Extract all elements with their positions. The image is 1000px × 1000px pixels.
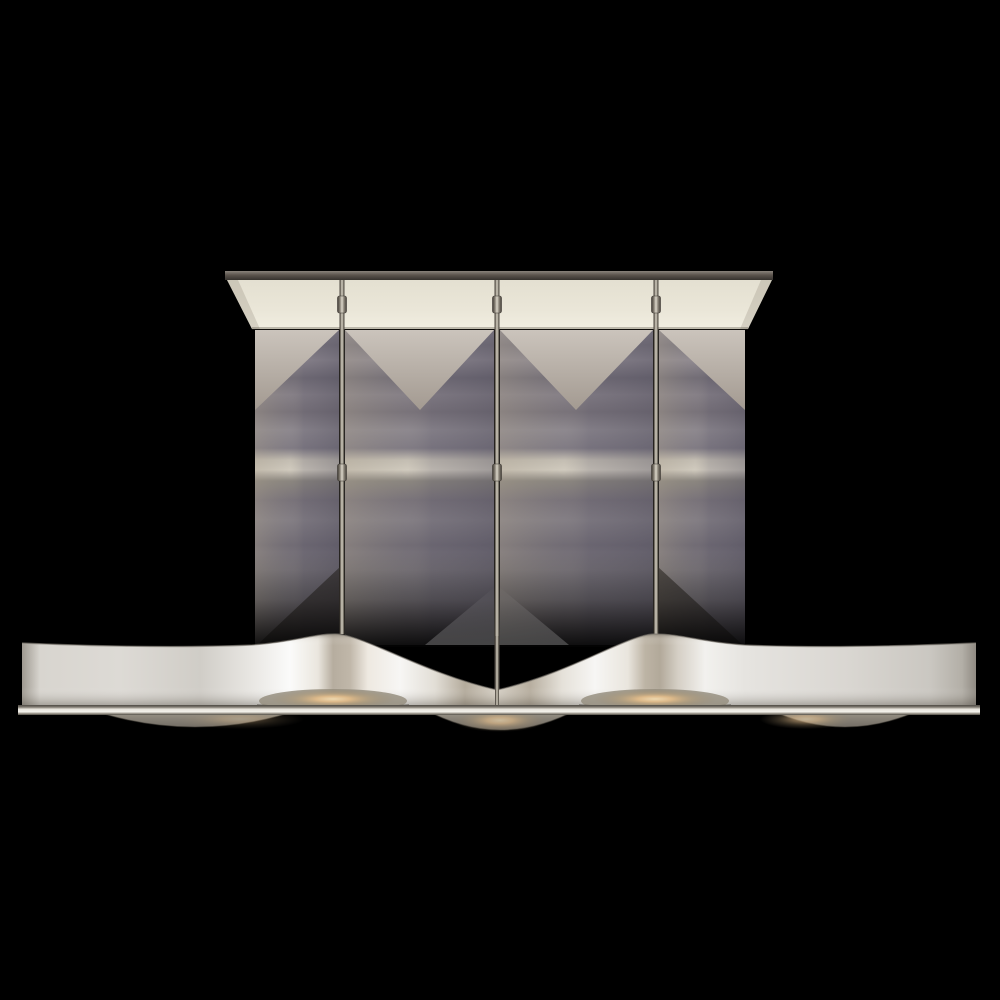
canopy-top-bar (225, 271, 773, 280)
product-image-canvas (0, 0, 1000, 1000)
hang-rod-front-segment (495, 636, 499, 708)
rod-swivel-joint (338, 296, 347, 313)
rod-swivel-joint (493, 296, 502, 313)
hang-rod (654, 280, 659, 634)
rod-swivel-joint (338, 464, 347, 481)
chandelier-illustration (0, 0, 1000, 1000)
rod-swivel-joint (652, 296, 661, 313)
rod-swivel-joint (493, 464, 502, 481)
rod-swivel-joint (652, 464, 661, 481)
canopy-bottom-shadow (252, 327, 748, 330)
bottom-rail (18, 705, 980, 715)
chandelier-scene (0, 0, 1000, 1000)
hang-rod (340, 280, 345, 634)
